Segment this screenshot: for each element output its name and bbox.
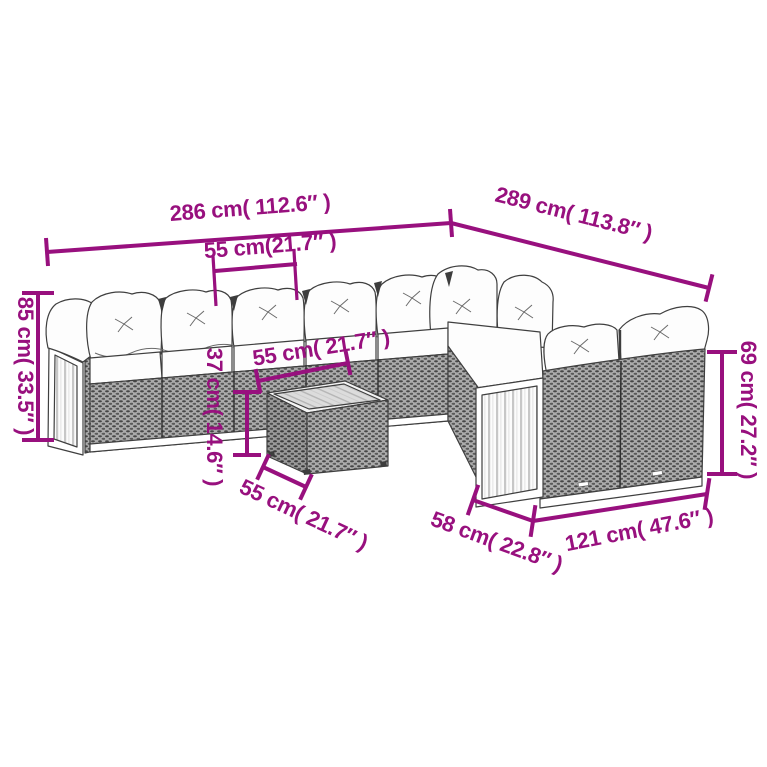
table-side-right [307, 400, 388, 474]
right-section-base [540, 349, 705, 508]
dim-label-left-height: 85 cm( 33.5″ ) [13, 297, 38, 435]
back-cushion [87, 292, 162, 360]
dim-label-seat-module-width: 55 cm(21.7″ ) [203, 228, 337, 263]
dim-label-right-section-depth: 58 cm( 22.8″ ) [428, 506, 567, 577]
dim-label-back-left-width: 286 cm( 112.6″ ) [169, 189, 331, 226]
right-armrest-wood-panel [476, 378, 543, 507]
sofa-illustration [46, 266, 708, 508]
dim-label-back-right-width: 289 cm( 113.8″ ) [493, 182, 655, 246]
dim-label-table-height: 37 cm( 14.6″ ) [202, 348, 227, 486]
dimension-right-height: 69 cm( 27.2″ ) [707, 341, 761, 479]
dimension-diagram: 286 cm( 112.6″ ) 289 cm( 113.8″ ) 55 cm(… [0, 0, 767, 767]
coffee-table-illustration [267, 381, 388, 475]
dimension-diagram-page: 286 cm( 112.6″ ) 289 cm( 113.8″ ) 55 cm(… [0, 0, 767, 767]
dim-label-right-height: 69 cm( 27.2″ ) [736, 341, 761, 479]
